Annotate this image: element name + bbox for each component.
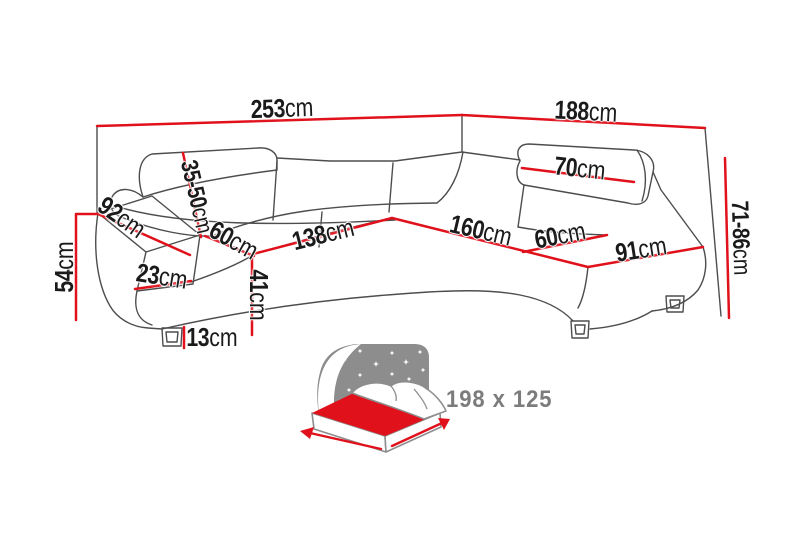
wall-right-edge	[705, 128, 721, 316]
dim-label-back-height: 71-86cm	[727, 200, 754, 275]
leg-side-right	[666, 296, 684, 312]
sofa-bottom-edge-right	[590, 311, 652, 329]
diagram-canvas	[0, 0, 800, 533]
back-top-edge	[277, 152, 462, 161]
dim-label-width-total: 253cm	[250, 94, 314, 122]
leg-front-left	[162, 328, 182, 346]
dim-label-end-width: 91cm	[614, 232, 669, 266]
sofa-bed-icon	[300, 344, 450, 452]
dim-label-headrest-width: 70cm	[553, 152, 607, 183]
corner-seam	[437, 152, 463, 203]
dim-label-arm-height: 54cm	[51, 241, 77, 292]
headrest-left-bottom	[143, 170, 277, 197]
right-back-seam	[518, 185, 524, 227]
chaise-front-corner	[578, 267, 588, 308]
dimension-line-54	[76, 214, 97, 320]
dim-label-arm-width: 23cm	[135, 259, 190, 293]
headrest-right-roll	[637, 150, 645, 201]
dim-label-seat-height: 41cm	[246, 269, 272, 320]
dim-label-leg-height: 13cm	[186, 324, 237, 350]
bed-length-arrowhead	[300, 427, 314, 439]
sleeping-area-label: 198 x 125	[446, 388, 553, 412]
leg-front-right	[571, 321, 589, 338]
sofa-dimension-diagram: 253cm 188cm 92cm 35-50cm 60cm 138cm 160c…	[0, 0, 800, 533]
corner-back-edge	[462, 152, 520, 160]
arm-front-bottom	[136, 291, 152, 325]
dim-label-depth-total: 188cm	[554, 96, 618, 125]
